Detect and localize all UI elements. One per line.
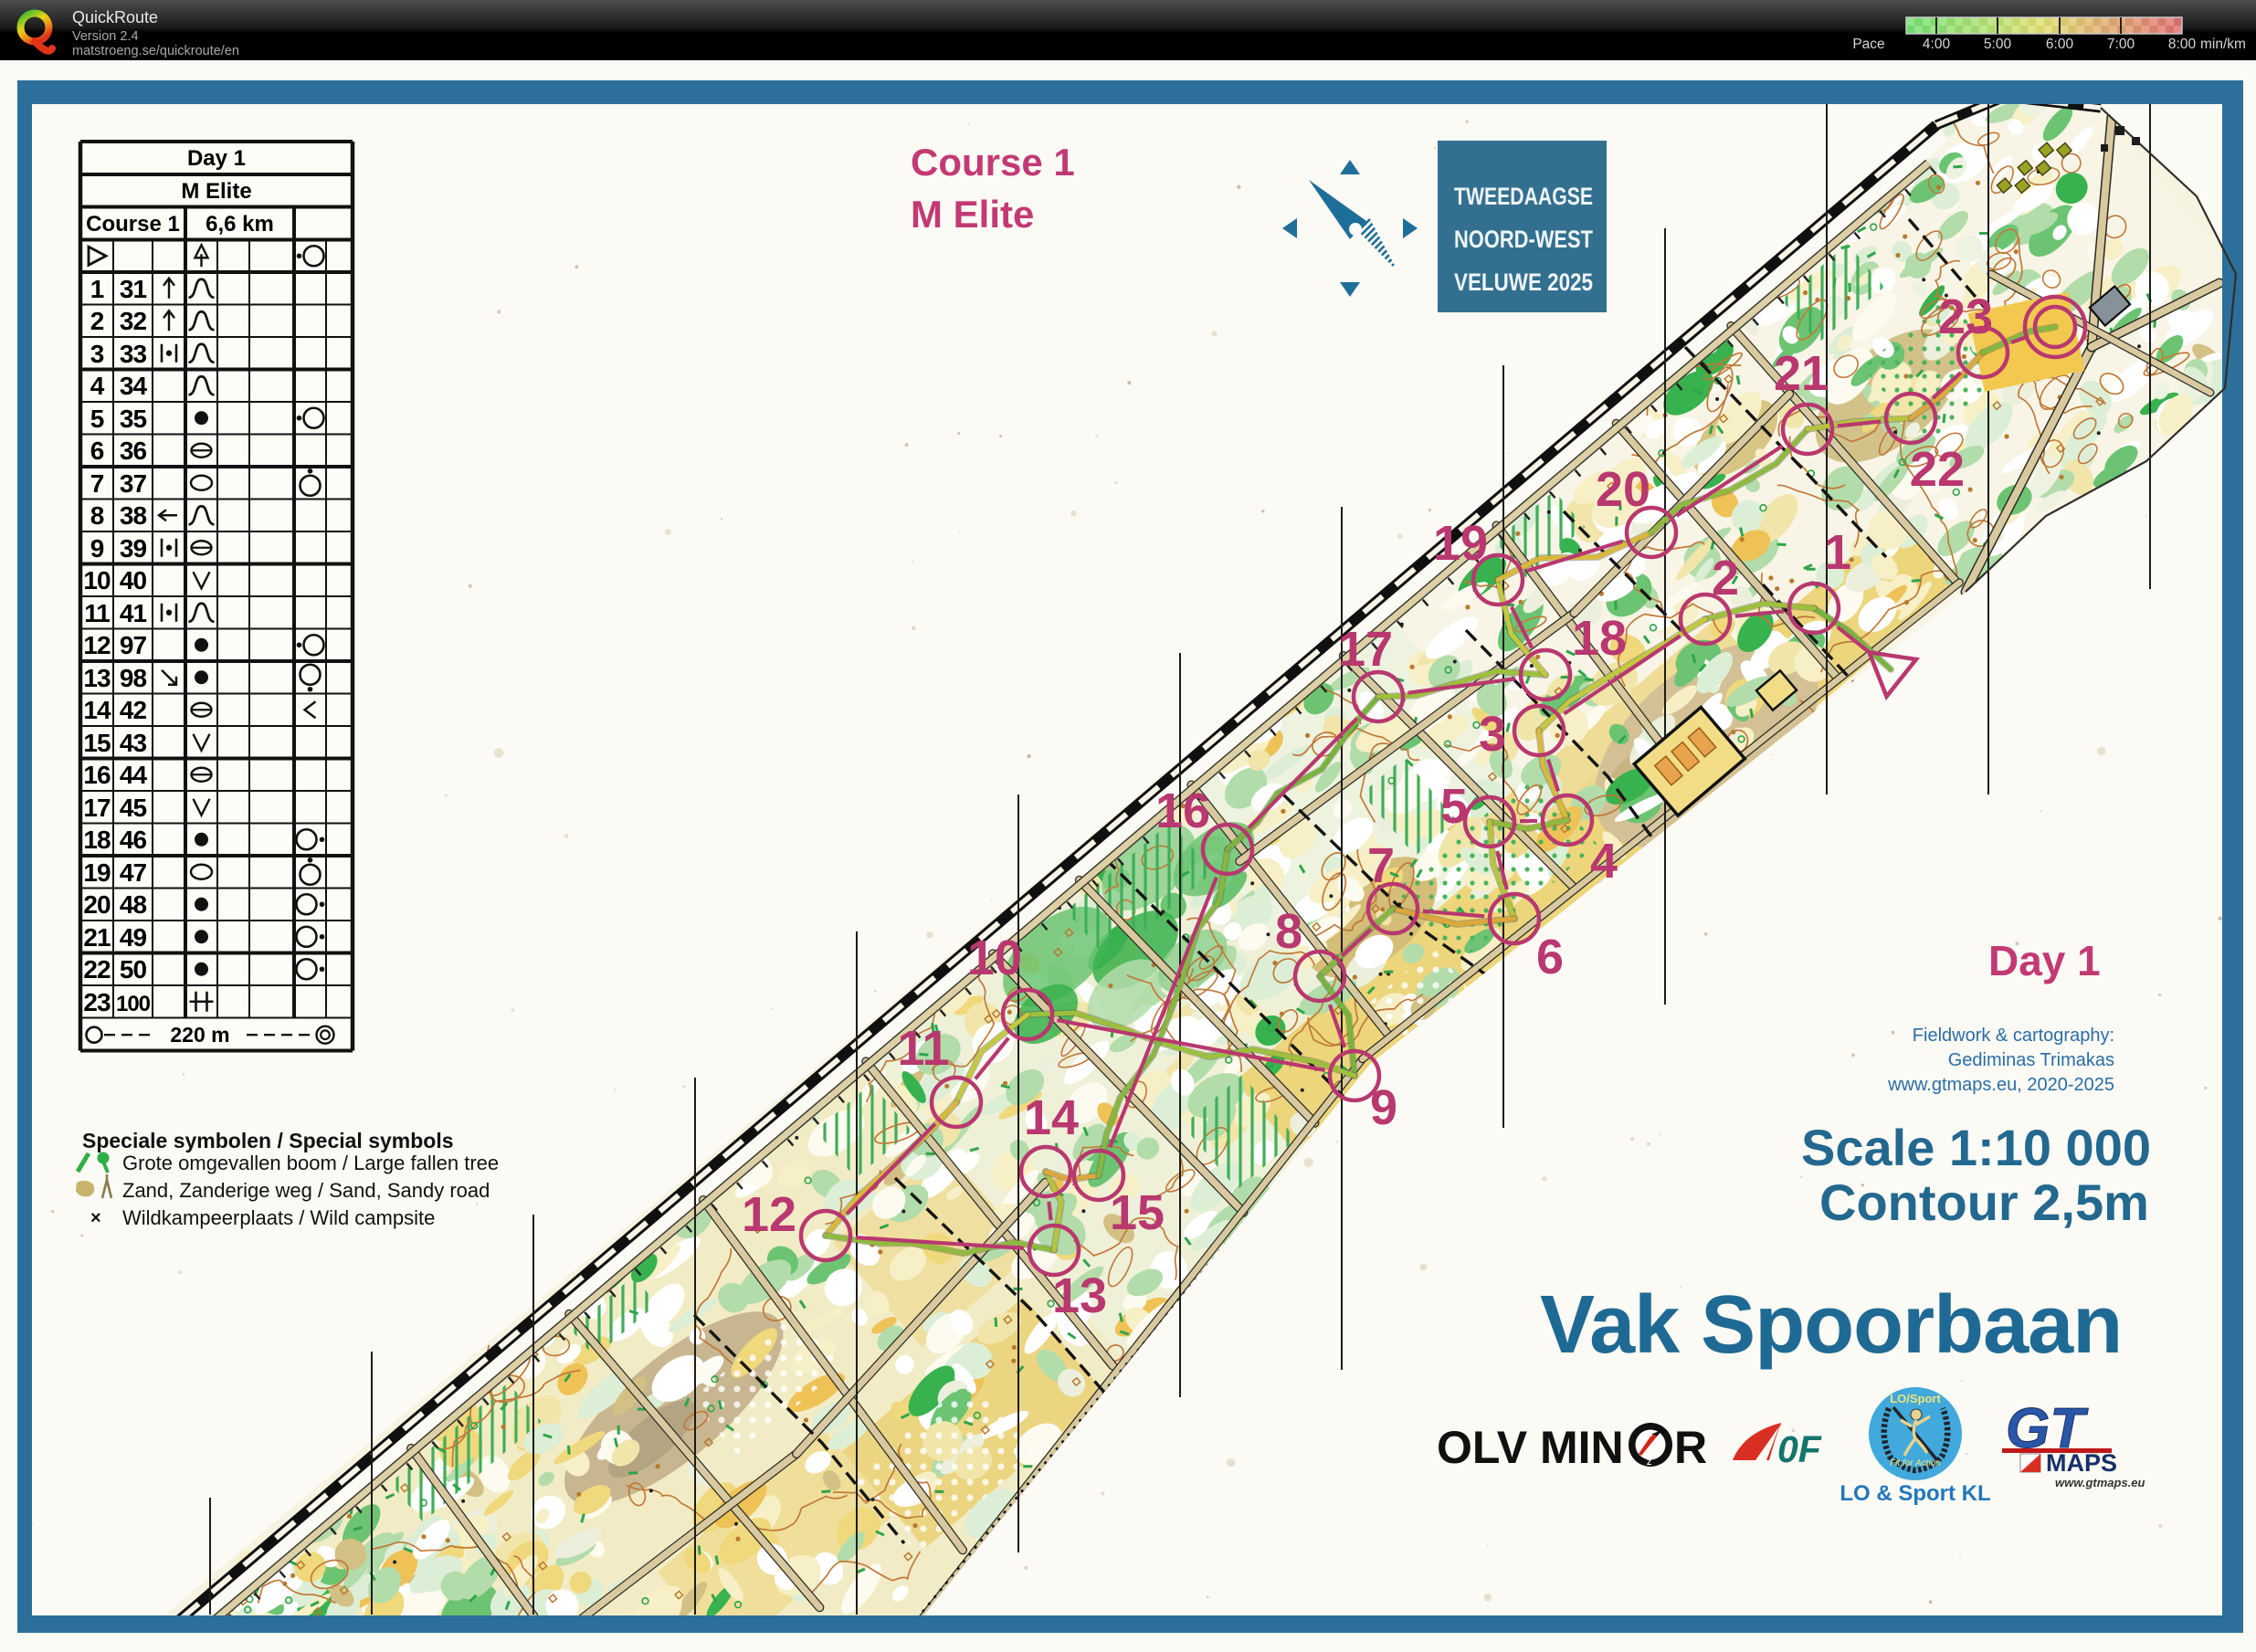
svg-text:23: 23 [83,988,111,1016]
svg-text:12: 12 [742,1187,796,1242]
svg-text:7:00: 7:00 [2107,37,2135,52]
svg-text:39: 39 [120,534,147,563]
svg-text:50: 50 [120,955,147,984]
svg-text:Contour 2,5m: Contour 2,5m [1819,1173,2149,1231]
svg-text:34: 34 [120,372,148,400]
svg-text:1: 1 [90,275,104,303]
svg-text:6,6 km: 6,6 km [206,212,274,237]
svg-text:43: 43 [120,729,147,757]
svg-text:12: 12 [83,631,111,659]
svg-text:LO/Sport: LO/Sport [1890,1392,1941,1405]
svg-text:Zand, Zanderige weg / Sand, Sa: Zand, Zanderige weg / Sand, Sandy road [122,1179,490,1202]
svg-text:20: 20 [1596,462,1650,517]
svg-text:100: 100 [116,992,151,1016]
svg-text:8: 8 [90,501,104,530]
svg-text:Pace: Pace [1852,37,1884,52]
svg-text:Course 1: Course 1 [86,212,180,237]
svg-text:5: 5 [90,405,104,433]
svg-text:MAPS: MAPS [2046,1449,2117,1477]
svg-text:www.gtmaps.eu: www.gtmaps.eu [2055,1476,2145,1489]
svg-text:32: 32 [120,307,147,335]
svg-text:Version 2.4: Version 2.4 [72,29,139,44]
svg-text:35: 35 [120,405,147,433]
svg-text:Day 1: Day 1 [1988,937,2101,984]
svg-text:13: 13 [1052,1268,1107,1323]
svg-text:6: 6 [90,437,104,465]
svg-text:Wildkampeerplaats / Wild camps: Wildkampeerplaats / Wild campsite [122,1206,435,1229]
svg-text:18: 18 [1572,611,1627,666]
svg-text:7: 7 [1367,838,1395,893]
svg-text:13: 13 [83,664,111,692]
svg-text:22: 22 [83,955,111,984]
svg-text:QuickRoute: QuickRoute [72,8,158,26]
svg-text:97: 97 [120,631,147,659]
svg-text:11: 11 [84,599,110,627]
svg-text:5: 5 [1440,779,1468,834]
svg-text:NOORD-WEST: NOORD-WEST [1454,226,1593,253]
svg-text:23: 23 [1938,289,1993,344]
svg-text:TWEEDAAGSE: TWEEDAAGSE [1454,183,1593,210]
svg-text:M Elite: M Elite [911,193,1034,236]
svg-text:33: 33 [120,340,147,368]
svg-text:48: 48 [120,890,147,919]
svg-text:18: 18 [83,826,111,854]
svg-text:Scale 1:10 000: Scale 1:10 000 [1801,1119,2151,1176]
svg-text:21: 21 [1774,346,1829,401]
svg-text:46: 46 [120,826,147,854]
svg-text:Z: Z [1647,1457,1651,1467]
svg-text:9: 9 [1370,1080,1397,1135]
svg-text:3: 3 [90,340,104,368]
svg-text:Course 1: Course 1 [911,141,1075,184]
svg-text:M Elite: M Elite [181,179,251,204]
svg-text:21: 21 [83,923,111,952]
svg-text:98: 98 [120,664,147,692]
svg-text:19: 19 [83,858,111,887]
svg-text:14: 14 [1024,1090,1079,1145]
svg-text:OLV MIN: OLV MIN [1437,1422,1624,1473]
svg-text:10: 10 [83,566,111,595]
svg-text:4: 4 [90,372,105,400]
svg-text:8:00: 8:00 [2168,37,2197,52]
svg-text:Gediminas Trimakas: Gediminas Trimakas [1948,1050,2114,1070]
svg-text:2: 2 [90,307,104,335]
svg-text:Grote omgevallen boom / Large: Grote omgevallen boom / Large fallen tre… [122,1152,499,1174]
svg-text:31: 31 [120,275,147,303]
svg-text:11: 11 [897,1021,949,1076]
svg-text:6:00: 6:00 [2046,37,2074,52]
svg-text:17: 17 [83,794,111,822]
svg-text:×: × [90,1208,101,1228]
svg-text:8: 8 [1275,904,1302,959]
svg-text:6: 6 [1536,930,1564,984]
svg-text:20: 20 [83,890,111,919]
svg-text:47: 47 [120,858,147,887]
svg-text:Day 1: Day 1 [187,146,246,171]
svg-text:45: 45 [120,794,147,822]
svg-text:15: 15 [83,729,111,757]
svg-text:22: 22 [1910,442,1965,497]
svg-text:41: 41 [120,599,147,627]
svg-text:LO & Sport KL: LO & Sport KL [1840,1481,1990,1506]
svg-text:16: 16 [83,761,111,789]
svg-text:2: 2 [1712,551,1739,605]
svg-text:matstroeng.se/quickroute/en: matstroeng.se/quickroute/en [72,44,239,58]
svg-text:1: 1 [1824,525,1851,580]
svg-text:42: 42 [120,696,147,724]
svg-text:44: 44 [120,761,148,789]
svg-text:36: 36 [120,437,147,465]
svg-text:4: 4 [1590,834,1618,889]
svg-text:7: 7 [90,469,104,498]
svg-text:0F: 0F [1777,1428,1822,1470]
svg-text:9: 9 [90,534,104,563]
svg-text:14: 14 [83,696,111,724]
svg-text:37: 37 [120,469,147,498]
svg-text:Fieldwork & cartography:: Fieldwork & cartography: [1913,1026,2114,1046]
svg-text:16: 16 [1155,784,1210,838]
svg-text:220 m: 220 m [170,1023,229,1047]
svg-text:38: 38 [120,501,147,530]
svg-text:Vak Spoorbaan: Vak Spoorbaan [1540,1279,2122,1371]
svg-text:17: 17 [1338,622,1393,677]
svg-text:10: 10 [967,931,1022,985]
svg-text:www.gtmaps.eu, 2020-2025: www.gtmaps.eu, 2020-2025 [1887,1075,2114,1095]
svg-text:5:00: 5:00 [1984,37,2012,52]
svg-text:15: 15 [1110,1185,1165,1240]
svg-text:Speciale symbolen / Special sy: Speciale symbolen / Special symbols [82,1129,454,1152]
svg-text:40: 40 [120,566,147,595]
svg-text:19: 19 [1433,516,1488,571]
svg-text:3: 3 [1479,707,1506,762]
svg-text:49: 49 [120,923,147,952]
svg-text:N: N [1647,1429,1652,1438]
svg-text:min/km: min/km [2200,37,2246,52]
svg-text:Fit for Action: Fit for Action [1890,1458,1941,1468]
svg-text:VELUWE 2025: VELUWE 2025 [1454,268,1593,296]
svg-text:R: R [1674,1422,1707,1473]
svg-text:4:00: 4:00 [1923,37,1951,52]
